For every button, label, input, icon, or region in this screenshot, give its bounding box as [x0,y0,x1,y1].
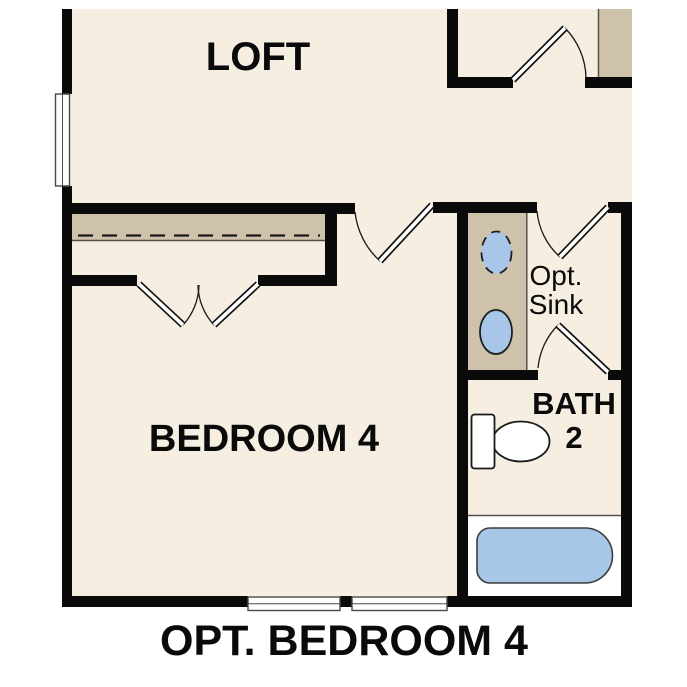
opt-sink-label-line2: Sink [529,290,583,319]
bedroom4-room-label: BEDROOM 4 [149,420,379,458]
closet-shelf [72,213,325,241]
opt-sink-label-line1: Opt. [529,261,583,290]
window [248,597,340,611]
sink-basin [480,310,512,354]
bathtub [477,528,612,583]
window [352,597,447,611]
floorplan: LOFT BEDROOM 4 Opt. Sink BATH 2 OPT. BED… [0,0,687,687]
bath2-label-line1: BATH [532,387,616,421]
optional-sink-basin [482,232,512,274]
plan-title: OPT. BEDROOM 4 [160,620,528,663]
bath2-label-line2: 2 [532,421,616,455]
floorplan-drawing [0,0,687,687]
opt-sink-label: Opt. Sink [529,261,583,319]
bath2-room-label: BATH 2 [532,387,616,455]
cut-wall-section [599,9,633,77]
window [56,94,70,186]
loft-room-label: LOFT [206,37,310,77]
